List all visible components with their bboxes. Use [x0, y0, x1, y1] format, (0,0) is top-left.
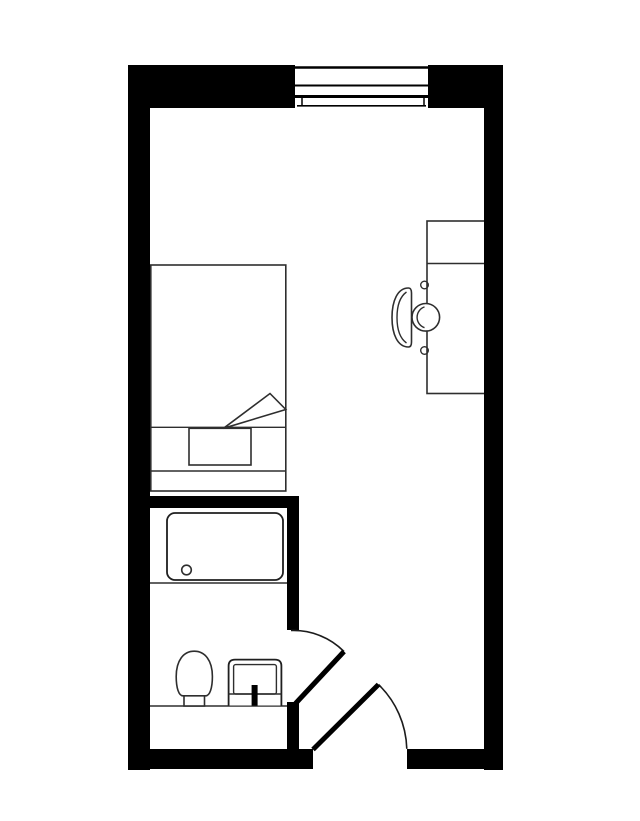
sink: [229, 660, 282, 706]
bathroom-door: [291, 630, 344, 703]
window: [295, 64, 428, 109]
chair-seat: [412, 304, 440, 332]
bed: [151, 265, 286, 491]
pillow: [189, 428, 251, 465]
toilet: [176, 651, 212, 706]
wall-left: [128, 65, 150, 770]
wall-right: [484, 65, 503, 770]
bathtub-drain: [182, 565, 192, 575]
wall-bottom-left-segment: [128, 749, 313, 769]
sink-faucet: [252, 685, 258, 706]
bathroom-partition-wall-upper: [287, 496, 299, 630]
floor-plan-page: [0, 0, 640, 821]
entry-door-swing-arc: [379, 685, 407, 749]
toilet-bowl: [176, 651, 212, 696]
wall-bottom-right-segment: [407, 749, 503, 769]
bathroom-partition-wall-horizontal: [149, 496, 299, 508]
bathroom-door-leaf: [296, 652, 345, 704]
entry-door: [313, 685, 407, 750]
bathtub: [167, 513, 283, 580]
floor-plan: [0, 0, 640, 821]
bathroom-door-swing-arc: [291, 630, 344, 651]
entry-door-leaf: [313, 685, 379, 750]
wall-top-left-segment: [128, 65, 295, 108]
bathroom-partition-wall-lower: [287, 702, 299, 749]
